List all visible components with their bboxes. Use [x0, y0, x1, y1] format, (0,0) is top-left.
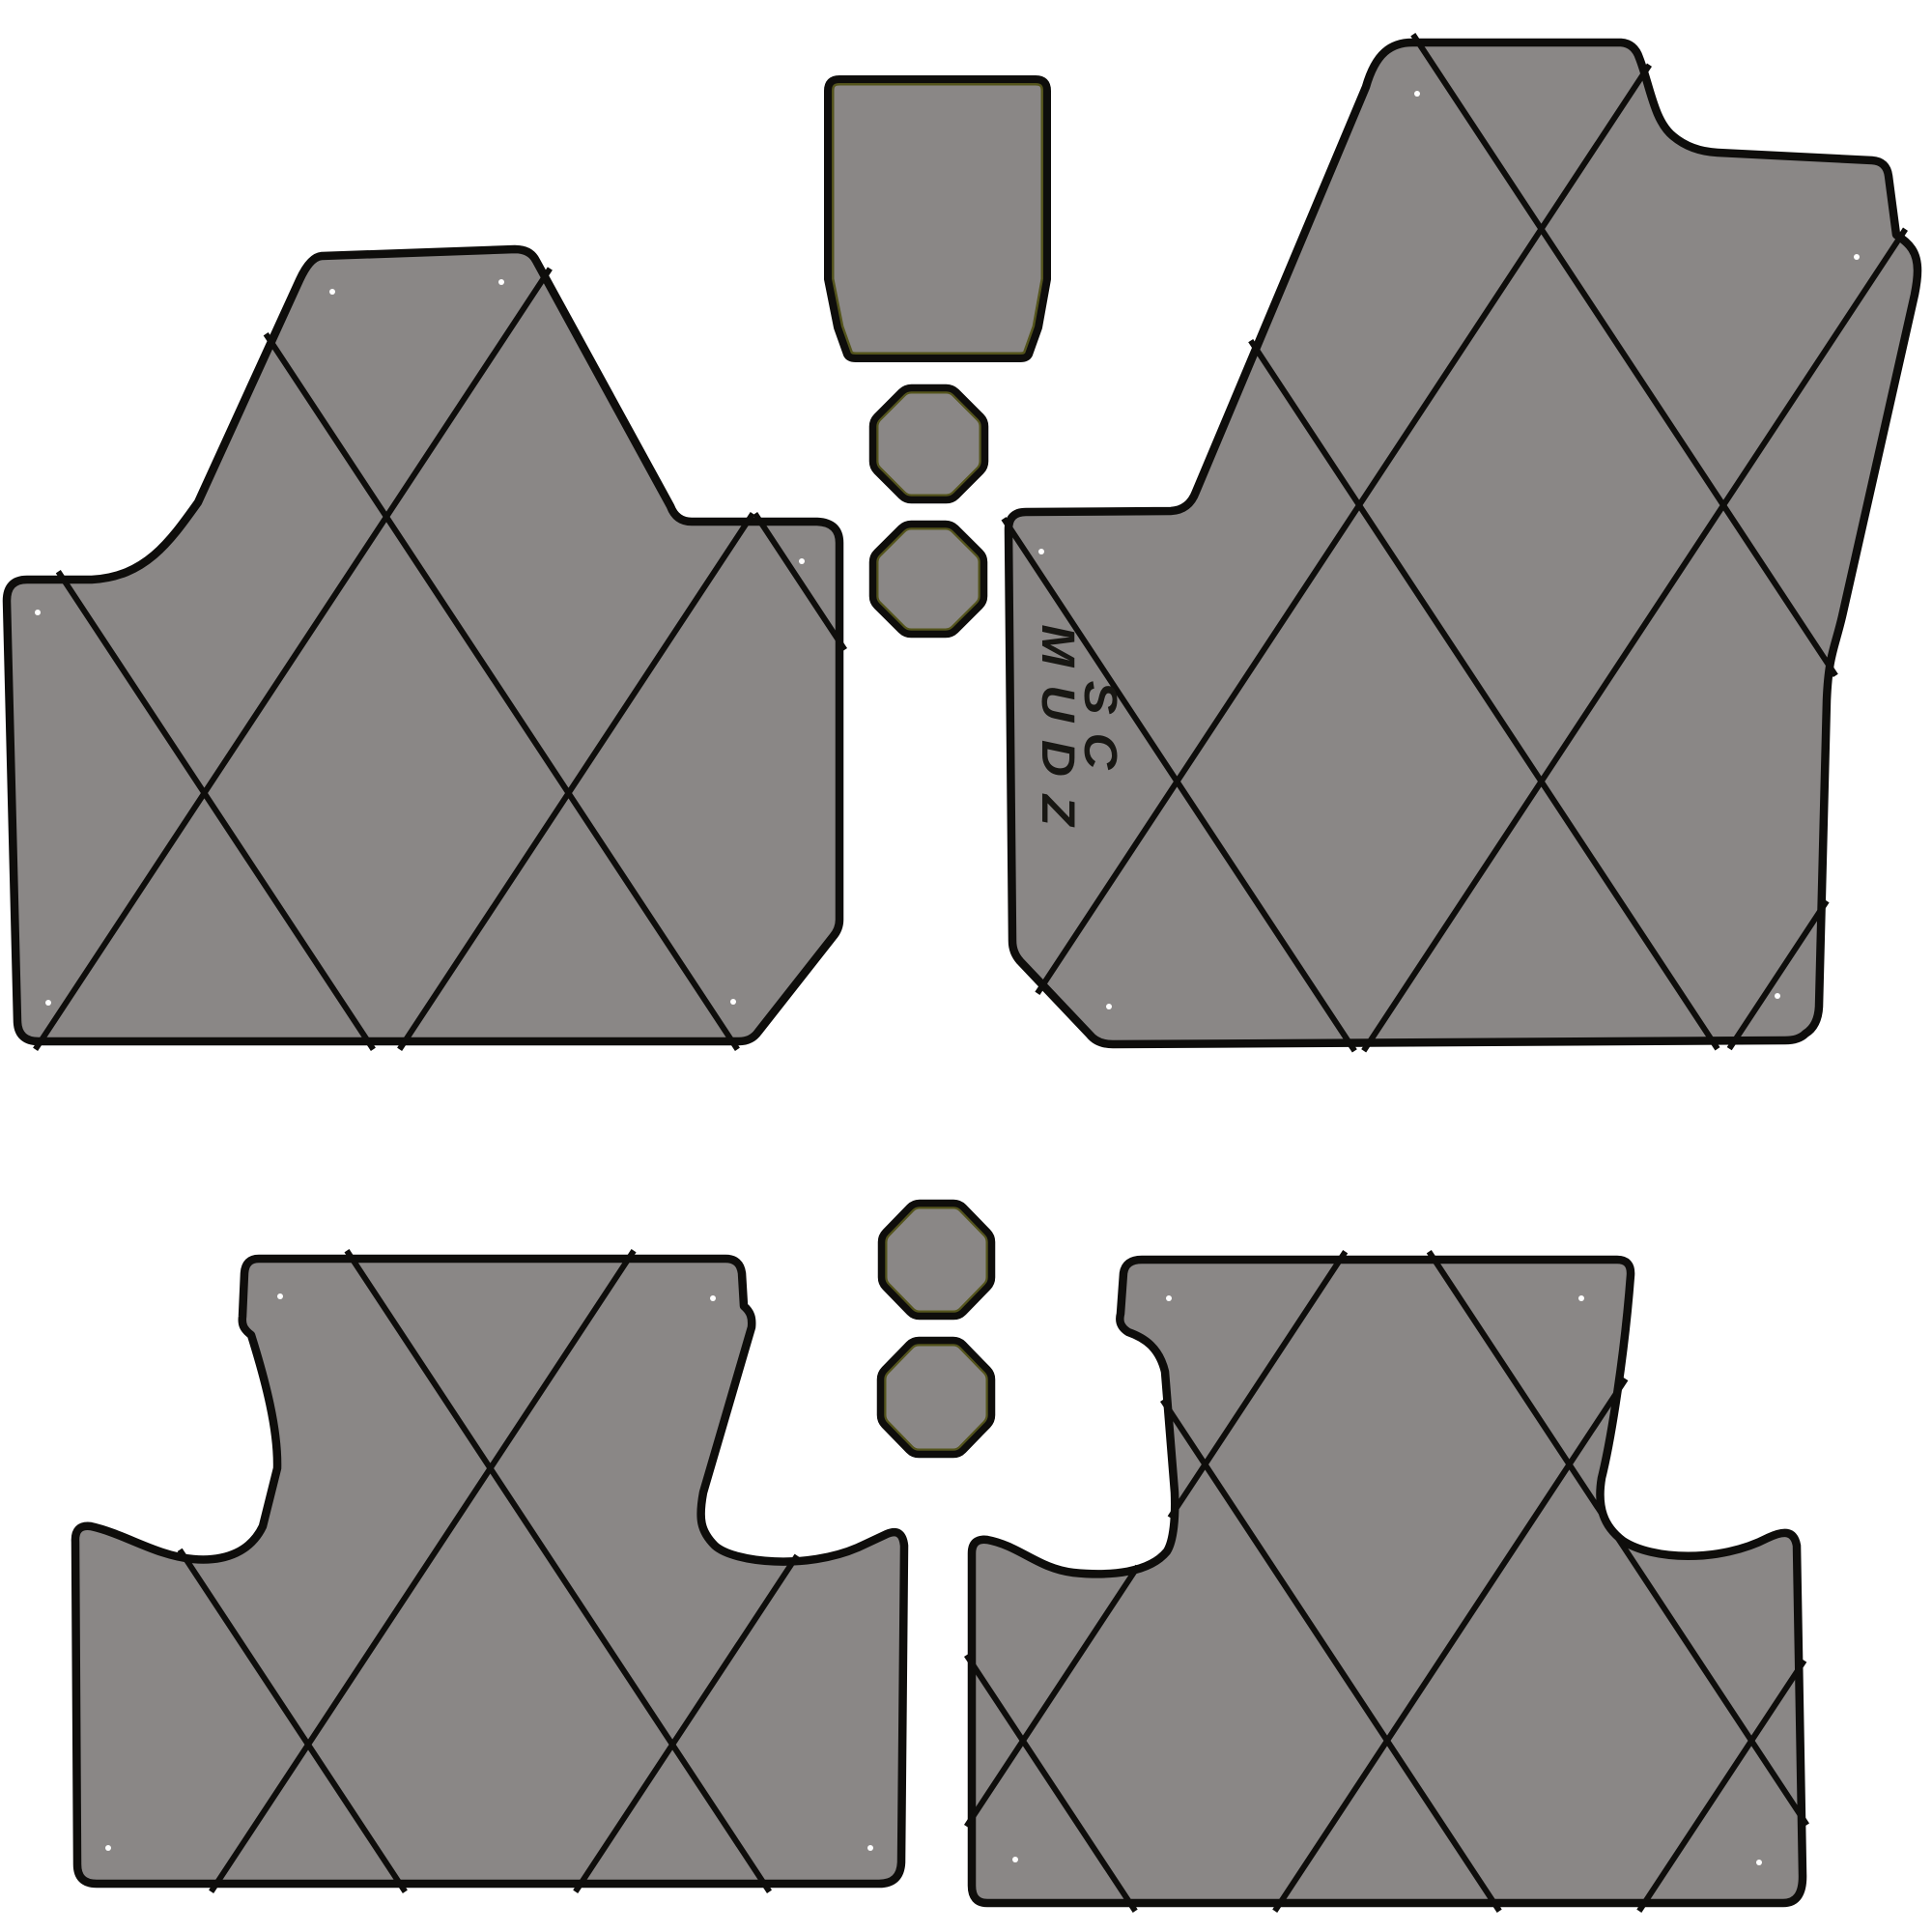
svg-text:MUDZ: MUDZ — [1033, 624, 1085, 843]
